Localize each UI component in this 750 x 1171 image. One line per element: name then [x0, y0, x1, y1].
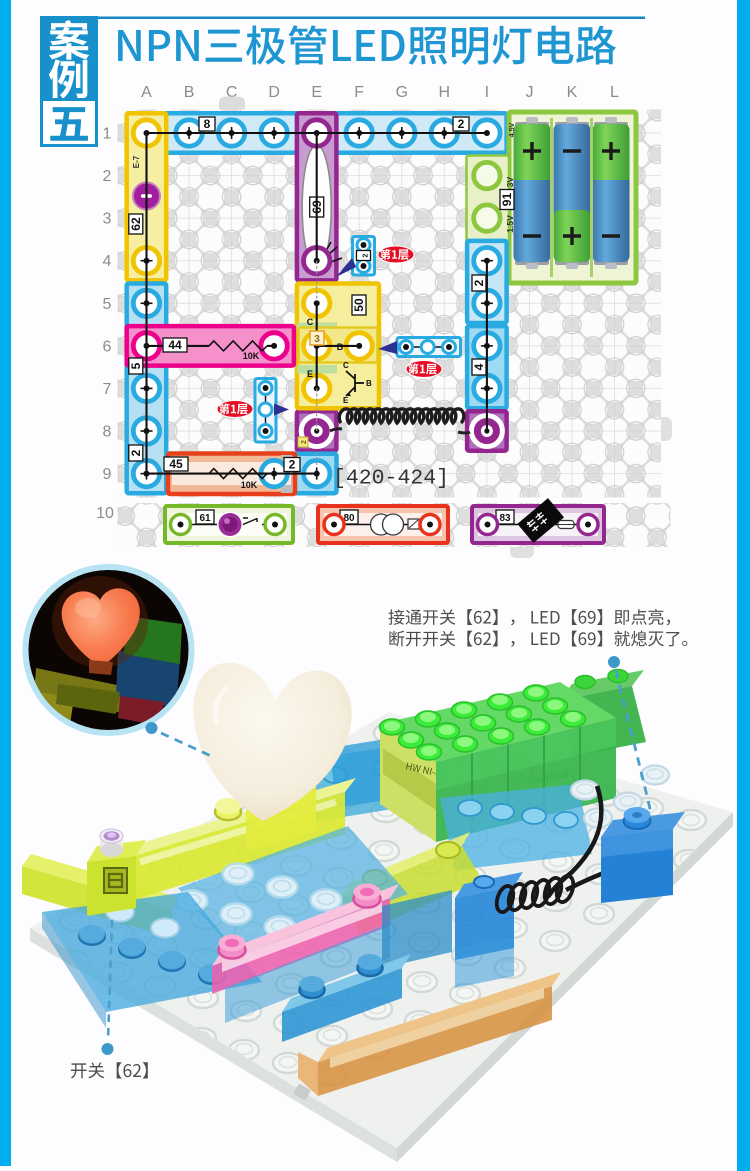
svg-text:J: J [526, 84, 534, 101]
svg-text:E-7: E-7 [132, 155, 141, 168]
svg-text:E: E [343, 396, 349, 405]
svg-text:1.5V: 1.5V [505, 215, 515, 233]
svg-text:E: E [311, 84, 322, 101]
svg-text:2: 2 [289, 458, 296, 472]
svg-text:C: C [343, 361, 349, 370]
svg-text:F: F [354, 84, 364, 101]
svg-text:44: 44 [168, 338, 182, 352]
svg-text:B: B [337, 342, 344, 352]
svg-text:10K: 10K [243, 351, 260, 361]
svg-text:2: 2 [129, 449, 143, 456]
svg-text:2: 2 [472, 279, 486, 286]
svg-text:I: I [485, 84, 489, 101]
svg-text:C: C [307, 317, 314, 327]
svg-text:2: 2 [363, 253, 370, 257]
svg-text:10: 10 [96, 505, 114, 522]
svg-text:7: 7 [103, 381, 112, 398]
svg-text:[420-424]: [420-424] [333, 467, 449, 491]
svg-text:8: 8 [103, 424, 112, 441]
svg-text:2: 2 [103, 168, 112, 185]
svg-text:8: 8 [204, 117, 211, 131]
svg-text:3V: 3V [505, 176, 515, 187]
svg-text:H: H [439, 84, 451, 101]
svg-text:5: 5 [103, 296, 112, 313]
svg-text:9: 9 [103, 466, 112, 483]
svg-text:G: G [396, 84, 408, 101]
svg-text:D: D [268, 84, 280, 101]
svg-text:2: 2 [458, 117, 465, 131]
svg-text:6: 6 [103, 338, 112, 355]
svg-text:61: 61 [199, 513, 211, 524]
svg-text:L: L [610, 84, 619, 101]
svg-text:10K: 10K [241, 480, 258, 490]
svg-text:62: 62 [129, 217, 143, 231]
svg-text:1: 1 [103, 126, 112, 143]
svg-text:B: B [184, 84, 195, 101]
svg-text:A: A [141, 84, 152, 101]
svg-text:3: 3 [314, 334, 320, 345]
svg-text:4: 4 [103, 253, 112, 270]
svg-text:4: 4 [472, 363, 486, 370]
svg-text:50: 50 [352, 298, 366, 312]
svg-text:91: 91 [500, 193, 514, 207]
svg-text:5: 5 [129, 362, 143, 369]
svg-text:45: 45 [169, 457, 183, 471]
svg-text:E: E [307, 369, 313, 379]
svg-text:K: K [567, 84, 578, 101]
svg-text:2: 2 [301, 440, 308, 444]
svg-text:3: 3 [103, 211, 112, 228]
svg-text:83: 83 [499, 513, 511, 524]
svg-text:B: B [366, 379, 372, 388]
svg-text:4.5V: 4.5V [509, 122, 516, 137]
